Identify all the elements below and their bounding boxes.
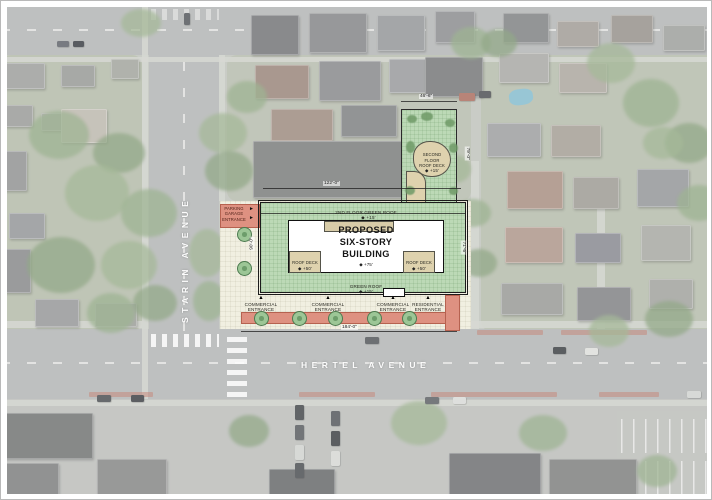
plan-tree	[367, 311, 382, 326]
roof-deck-shrub	[449, 143, 458, 153]
dimension-south: 184'-0"	[341, 325, 358, 330]
dimension-north: 122'-0"	[323, 181, 340, 186]
site-plan-sheet: STARIN AVENUE HERTEL AVENUE PARKING GARA…	[0, 0, 712, 500]
plan-tree	[402, 311, 417, 326]
building-title: PROPOSED SIX-STORY BUILDING	[306, 225, 426, 260]
garage-arrow-icon: ►	[249, 216, 254, 221]
second-floor-roof-deck-elevation: ◆ +15'	[414, 168, 450, 174]
sidewalk-strip-south	[241, 312, 457, 324]
site-plan-overlay: PARKING GARAGE ENTRANCE ► ► SECOND FLOOR…	[7, 7, 707, 494]
aerial-photo: STARIN AVENUE HERTEL AVENUE PARKING GARA…	[7, 7, 707, 494]
plan-tree	[254, 311, 269, 326]
second-floor-roof-deck-label: SECOND FLOOR ROOF DECK ◆ +15'	[414, 147, 450, 179]
green-roof-band-label: 2ND FLOOR GREEN ROOF ◆ +15'	[266, 204, 466, 221]
plan-tree	[237, 261, 252, 276]
dimension-line-north	[263, 188, 461, 189]
roof-deck-shrub	[421, 112, 433, 121]
green-roof-elevation: ◆ +15'	[331, 289, 401, 294]
roof-deck-shrub	[406, 141, 415, 153]
entrance-commercial-3: ▲ COMMERCIAL ENTRANCE	[374, 296, 412, 313]
dimension-line-northeast	[401, 101, 457, 102]
aerial-world: STARIN AVENUE HERTEL AVENUE PARKING GARA…	[7, 7, 707, 494]
dimension-east-upper: 79'-0"	[464, 147, 469, 161]
roof-deck-shrub	[407, 115, 417, 123]
roof-deck-shrub	[445, 119, 455, 127]
entrance-commercial-2-label: COMMERCIAL ENTRANCE	[309, 302, 347, 313]
dimension-west: 90'-0"	[249, 237, 254, 251]
sidewalk-strip-east	[445, 295, 460, 331]
dimension-northeast: 46'-6"	[419, 94, 433, 99]
plan-tree	[328, 311, 343, 326]
dimension-line-south	[241, 331, 457, 332]
entrance-commercial-2: ▲ COMMERCIAL ENTRANCE	[309, 296, 347, 313]
garage-arrow-icon: ►	[249, 207, 254, 212]
green-roof-text: GREEN ROOF	[350, 284, 382, 289]
building-elevation: ◆ +75'	[306, 262, 426, 268]
entrance-residential: ▲ RESIDENTIAL ENTRANCE	[409, 296, 447, 313]
dimension-east: 71'-6"	[460, 241, 465, 255]
plan-tree	[292, 311, 307, 326]
parking-garage-entrance-label: PARKING GARAGE ENTRANCE	[221, 206, 247, 222]
green-roof-band-text: 2ND FLOOR GREEN ROOF	[335, 210, 396, 215]
second-floor-roof-deck-text: SECOND FLOOR ROOF DECK	[419, 152, 445, 168]
entrance-residential-label: RESIDENTIAL ENTRANCE	[409, 302, 447, 313]
